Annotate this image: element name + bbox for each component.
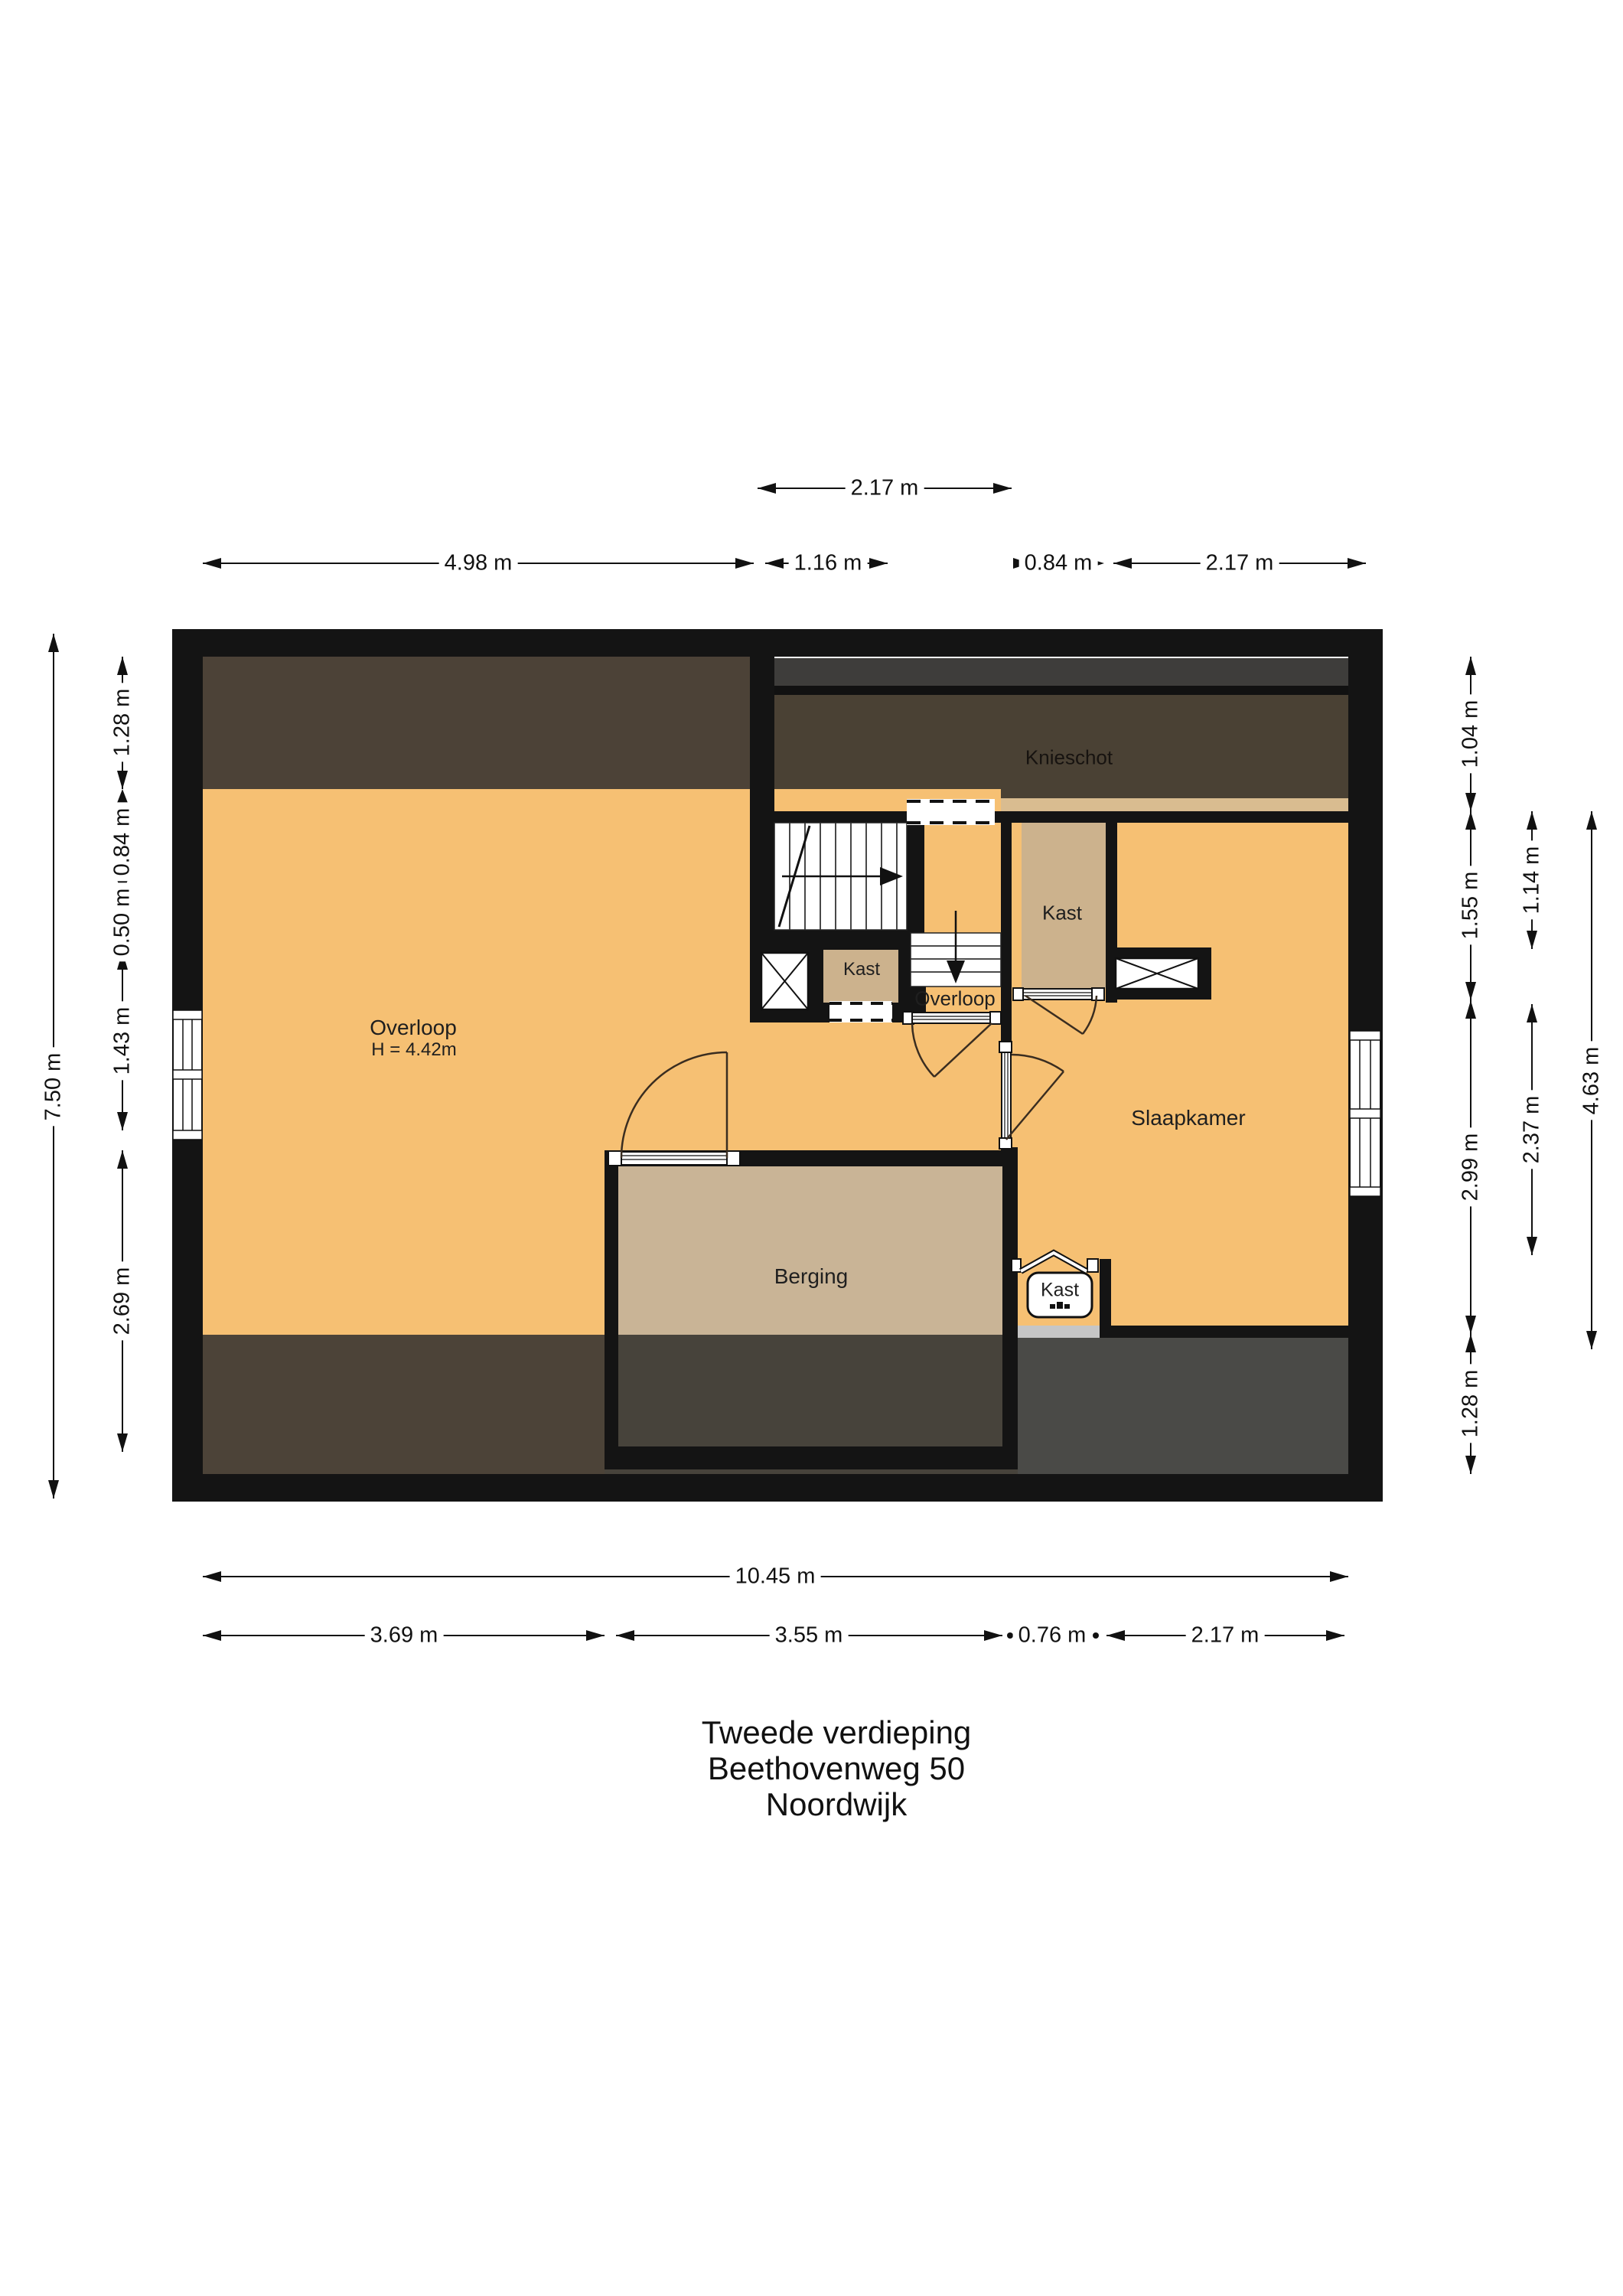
dim-right-299: 2.99 m [1458, 1128, 1484, 1207]
dim-left-outer-750: 7.50 m [41, 1048, 67, 1127]
wall-stairs-right [907, 811, 924, 943]
kast-step-strip [1018, 1326, 1100, 1338]
dim-bottom-total: 10.45 m [730, 1564, 821, 1590]
room-label-overloop: Overloop [370, 1016, 457, 1040]
dim-upper-498: 4.98 m [439, 550, 518, 577]
dim-left-084: 0.84 m [109, 803, 136, 882]
roof-band-left [203, 657, 750, 789]
wall-stairs-bottom [750, 930, 924, 943]
floor-zones [203, 657, 1348, 1474]
dim-right-128: 1.28 m [1458, 1365, 1484, 1443]
dim-left-050: 0.50 m [109, 883, 136, 962]
dim-bottom-369: 3.69 m [365, 1623, 444, 1649]
dim-rightmid-237: 2.37 m [1519, 1091, 1546, 1169]
dim-upper-217: 2.17 m [1201, 550, 1279, 577]
dim-right-104: 1.04 m [1458, 695, 1484, 774]
floorplan-drawing [0, 0, 1623, 2296]
room-label-overloop-height: H = 4.42m [371, 1039, 456, 1061]
dim-bottom-217: 2.17 m [1186, 1623, 1265, 1649]
dim-left-143: 1.43 m [109, 1002, 136, 1081]
floorplan-page: Knieschot Kast Kast Overloop Overloop H … [0, 0, 1623, 2296]
wall-center-column [1001, 811, 1012, 1043]
wall-outer-top [172, 629, 1383, 657]
dim-right-outer-463: 4.63 m [1579, 1042, 1605, 1120]
room-label-kast-bottom: Kast [1041, 1280, 1079, 1302]
dim-bottom-355: 3.55 m [770, 1623, 849, 1649]
title-block: Tweede verdieping Beethovenweg 50 Noordw… [702, 1714, 972, 1822]
title-line-2: Beethovenweg 50 [702, 1750, 972, 1786]
room-label-kast-top: Kast [1042, 902, 1082, 925]
dim-left-269: 2.69 m [109, 1262, 136, 1341]
berging-floor [618, 1166, 1002, 1335]
wall-berging-left [605, 1150, 618, 1469]
dim-upper-084: 0.84 m [1019, 550, 1098, 577]
dim-top-217: 2.17 m [846, 475, 924, 502]
room-label-kast-mid: Kast [843, 959, 880, 980]
room-label-slaapkamer: Slaapkamer [1131, 1106, 1245, 1130]
title-line-1: Tweede verdieping [702, 1714, 972, 1750]
roof-band-bottom-right [1018, 1335, 1348, 1474]
dim-right-155: 1.55 m [1458, 866, 1484, 945]
shaft-x-symbol [761, 953, 808, 1009]
title-line-3: Noordwijk [702, 1786, 972, 1822]
chimney-x-symbol [1116, 958, 1198, 989]
wall-outer-bottom [172, 1474, 1383, 1502]
roof-band-bottom-left [203, 1335, 605, 1474]
wall-kast-small-stub [1100, 1259, 1111, 1338]
wall-berging-bottom [618, 1446, 1002, 1469]
roof-strip-gray [774, 658, 1348, 686]
room-label-berging: Berging [774, 1264, 849, 1289]
wall-stairs-left [750, 657, 774, 943]
wall-berging-right [1002, 1150, 1018, 1469]
dim-bottom-076: 0.76 m [1013, 1623, 1092, 1649]
window-right [1350, 1031, 1380, 1196]
wall-slaapkamer-bottom [1111, 1326, 1348, 1338]
dim-rightmid-114: 1.14 m [1519, 841, 1546, 920]
stairs-main [774, 823, 907, 930]
wall-under-knieschot [774, 811, 1348, 823]
dim-upper-116: 1.16 m [789, 550, 868, 577]
room-label-knieschot: Knieschot [1025, 746, 1113, 770]
dashed-opening-top [907, 799, 995, 825]
dashed-opening-kast-mid [829, 1001, 892, 1022]
window-left [173, 1010, 202, 1140]
strip-divider [774, 686, 1348, 695]
room-label-overloop-small: Overloop [914, 987, 996, 1011]
dim-left-128: 1.28 m [109, 683, 136, 762]
